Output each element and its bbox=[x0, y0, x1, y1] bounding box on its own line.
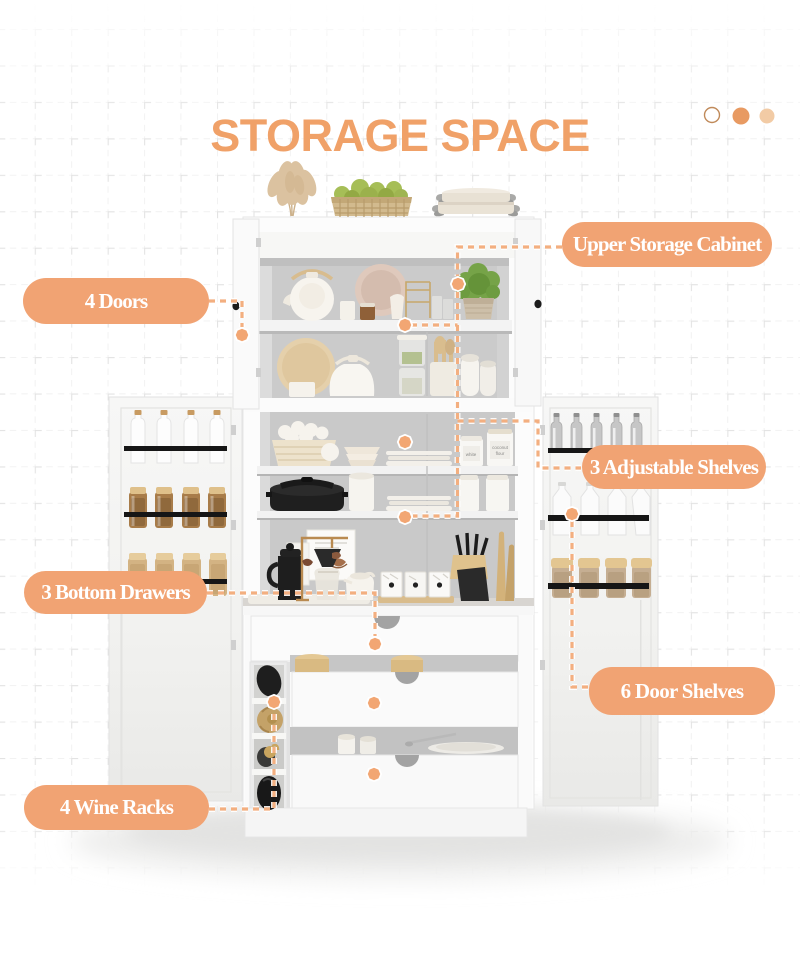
svg-text:white: white bbox=[466, 452, 477, 457]
svg-text:coconut: coconut bbox=[492, 445, 509, 450]
svg-text:flour: flour bbox=[496, 451, 505, 456]
